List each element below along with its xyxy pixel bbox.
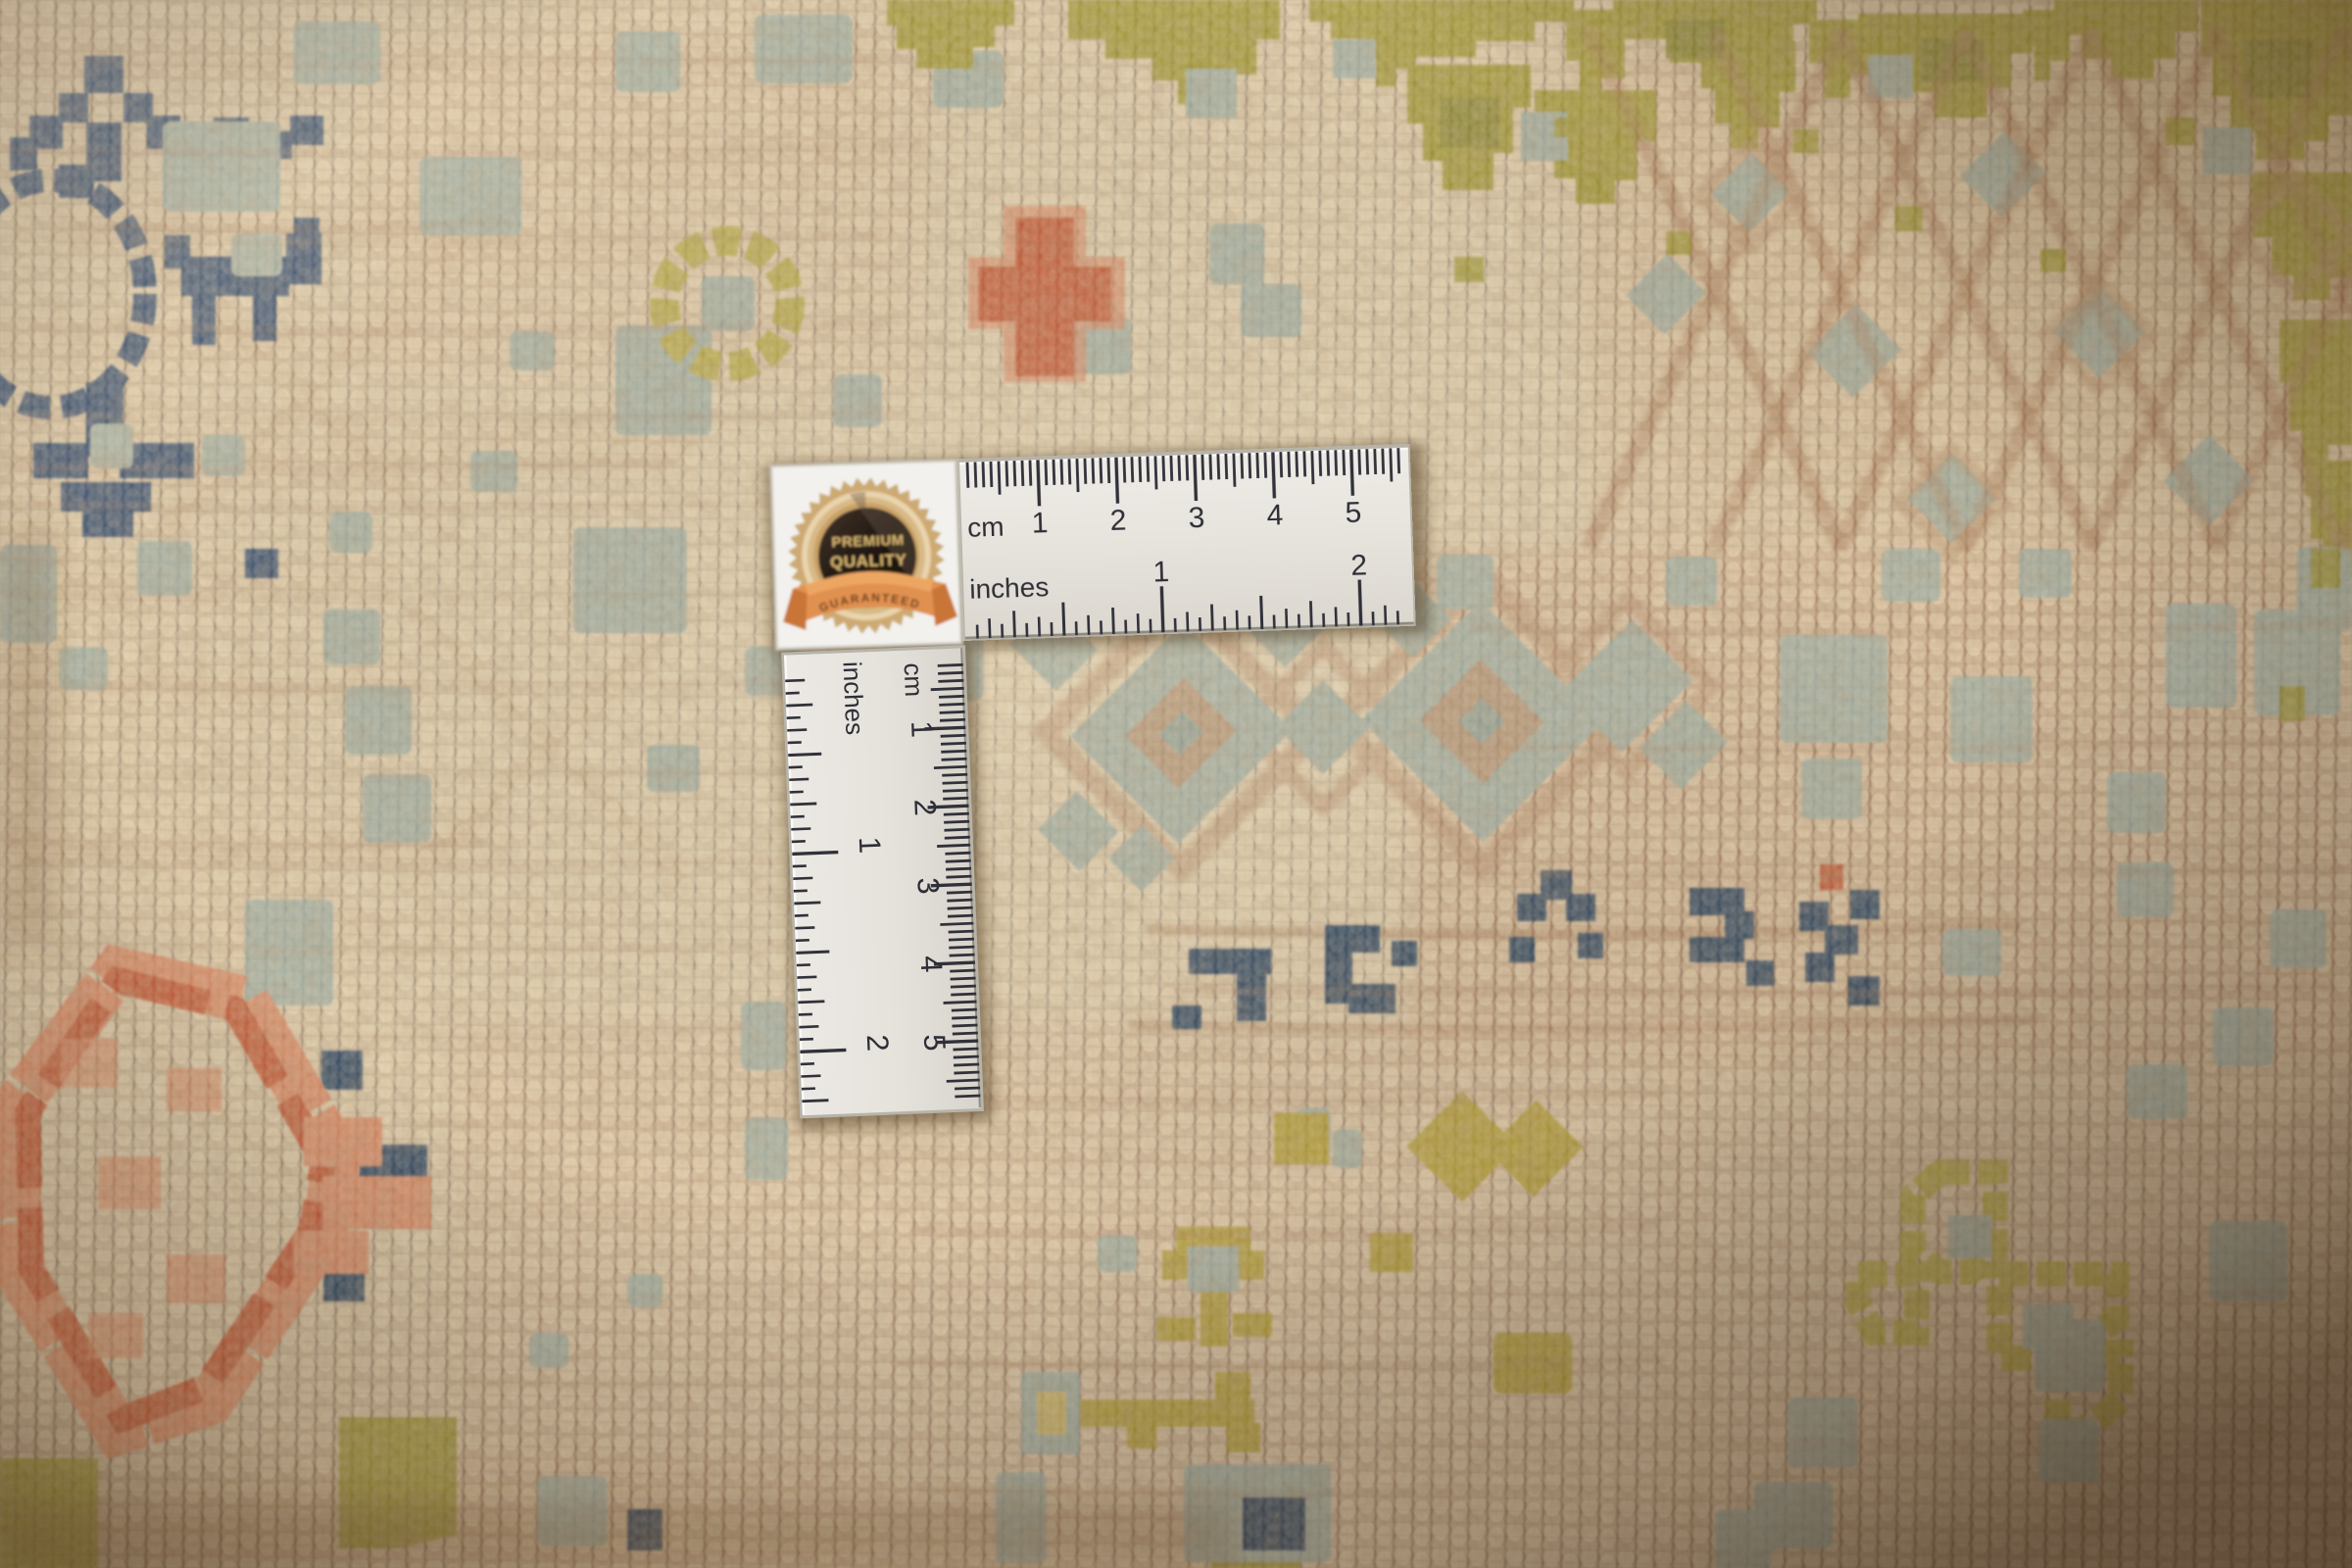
- svg-text:1: 1: [1031, 507, 1049, 540]
- svg-text:2: 2: [1109, 504, 1127, 537]
- svg-text:1: 1: [905, 720, 940, 739]
- svg-text:1: 1: [1152, 556, 1170, 589]
- svg-text:1: 1: [853, 836, 888, 855]
- svg-text:4: 4: [1266, 499, 1284, 532]
- svg-text:inches: inches: [969, 571, 1050, 605]
- svg-text:2: 2: [1350, 549, 1368, 582]
- svg-text:2: 2: [907, 799, 943, 817]
- svg-text:4: 4: [914, 955, 950, 974]
- svg-text:3: 3: [1188, 502, 1205, 535]
- svg-text:QUALITY: QUALITY: [830, 551, 907, 571]
- svg-text:cm: cm: [899, 662, 929, 698]
- svg-text:PREMIUM: PREMIUM: [831, 532, 905, 551]
- svg-text:5: 5: [1345, 496, 1362, 529]
- svg-text:cm: cm: [967, 512, 1004, 543]
- svg-text:3: 3: [910, 877, 946, 896]
- svg-text:5: 5: [917, 1033, 953, 1052]
- svg-text:inches: inches: [838, 661, 870, 735]
- svg-text:2: 2: [860, 1034, 896, 1053]
